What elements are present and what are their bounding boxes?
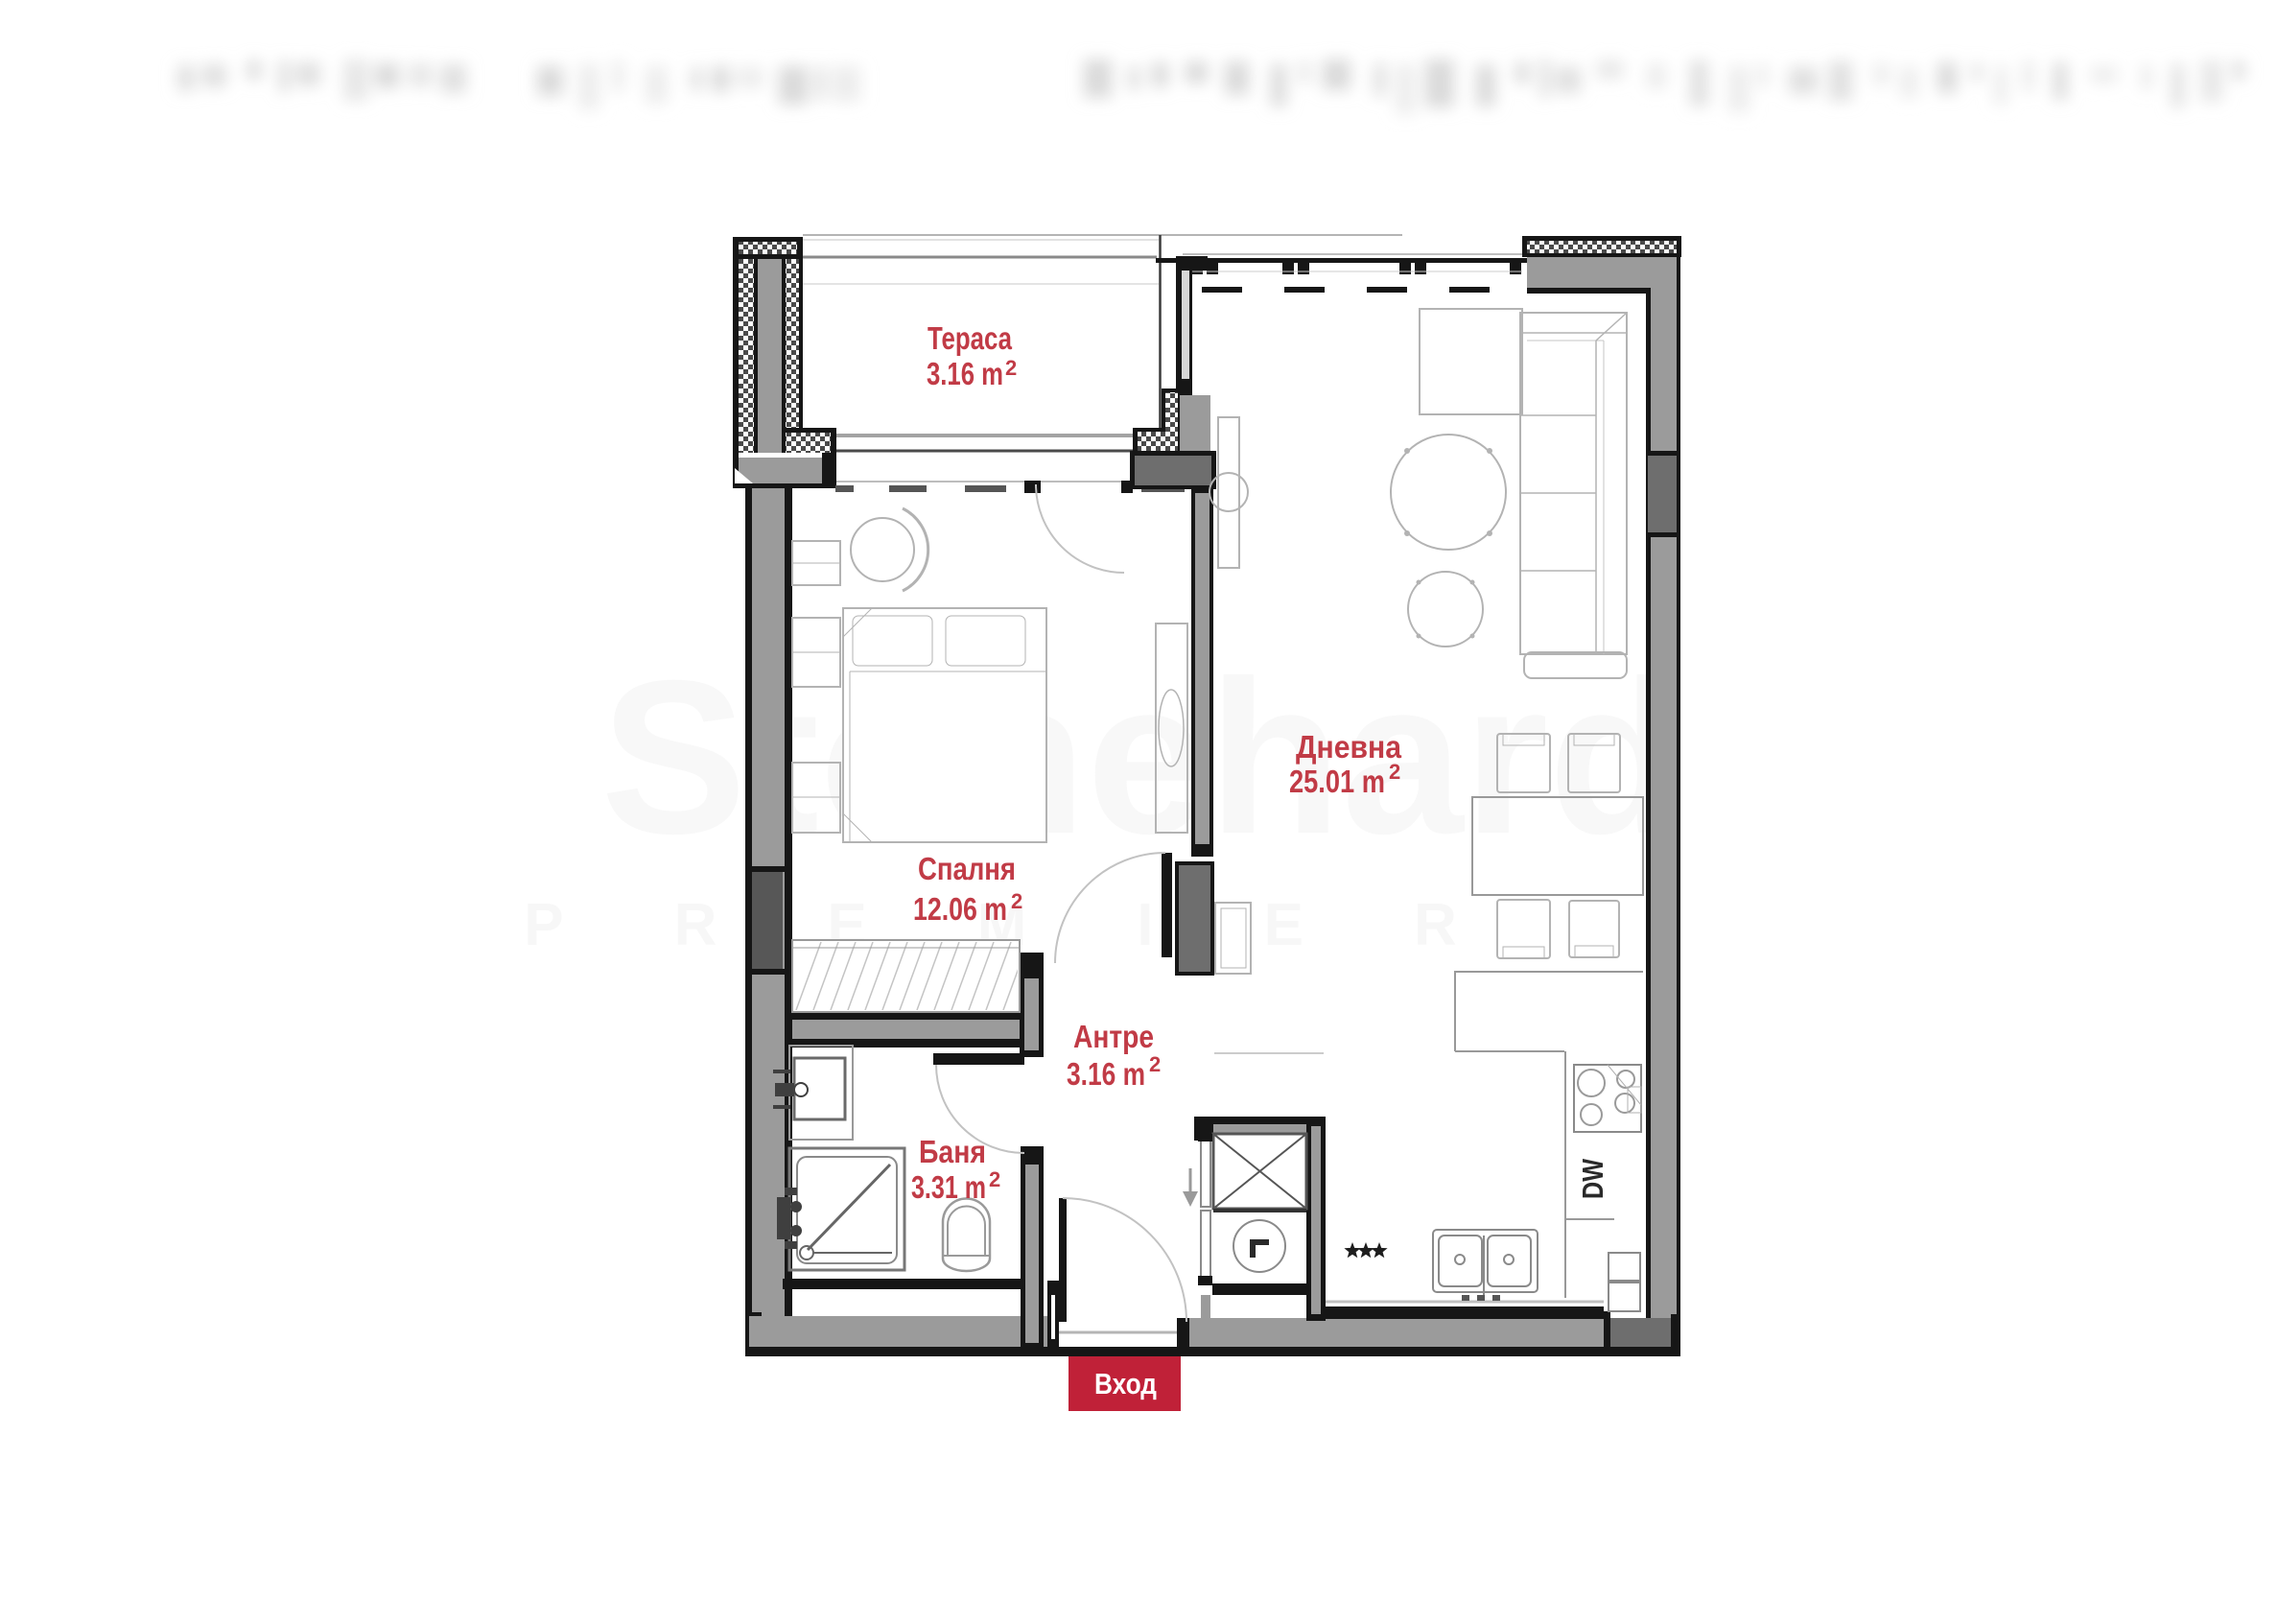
svg-text:12.06 m: 12.06 m xyxy=(913,891,1007,927)
svg-text:Баня: Баня xyxy=(919,1134,986,1169)
svg-text:3.31 m: 3.31 m xyxy=(911,1169,986,1205)
svg-text:Тераса: Тераса xyxy=(928,320,1012,356)
svg-text:2: 2 xyxy=(1011,889,1022,913)
svg-text:2: 2 xyxy=(1149,1052,1161,1076)
svg-text:Дневна: Дневна xyxy=(1296,729,1402,765)
svg-text:Антре: Антре xyxy=(1073,1019,1154,1054)
svg-text:Вход: Вход xyxy=(1094,1367,1157,1400)
svg-text:2: 2 xyxy=(1005,356,1017,380)
svg-text:PREMIER: PREMIER xyxy=(524,892,1566,958)
svg-text:3.16 m: 3.16 m xyxy=(1067,1056,1145,1092)
svg-text:DW: DW xyxy=(1576,1158,1609,1199)
svg-text:2: 2 xyxy=(989,1167,1000,1191)
svg-text:2: 2 xyxy=(1389,760,1400,784)
svg-text:25.01 m: 25.01 m xyxy=(1289,764,1385,799)
svg-text:3.16 m: 3.16 m xyxy=(927,356,1003,391)
svg-text:Спалня: Спалня xyxy=(918,851,1016,886)
